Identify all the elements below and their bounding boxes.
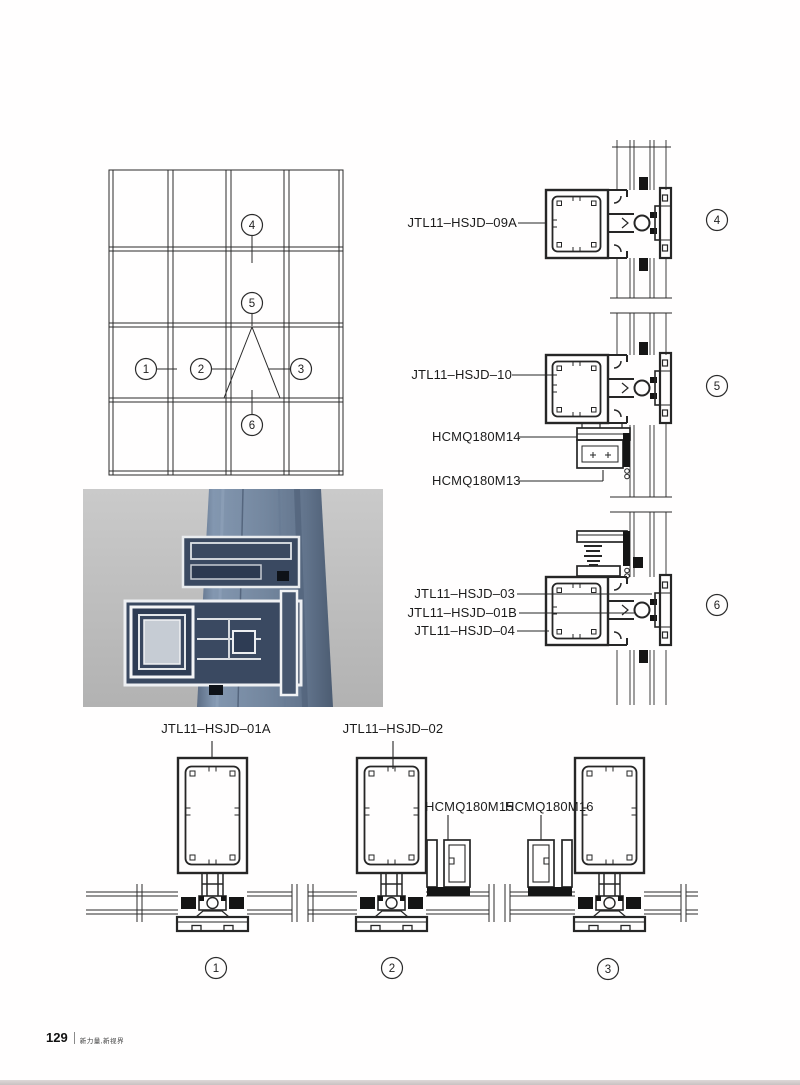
label-jtl11-hsjd-10: JTL11–HSJD–10	[402, 368, 512, 382]
callout-4: 4	[714, 215, 721, 227]
label-jtl11-hsjd-09a: JTL11–HSJD–09A	[402, 216, 517, 230]
callout-1: 1	[143, 364, 149, 376]
bottom-callouts: 1 2 3	[206, 958, 619, 980]
detail-section-2	[356, 758, 470, 931]
bottom-leader-lines	[212, 741, 541, 840]
elevation-grid	[109, 170, 343, 475]
label-hcmq180m16: HCMQ180M16	[505, 800, 585, 814]
callout-1: 1	[213, 963, 219, 975]
label-hcmq180m15: HCMQ180M15	[425, 800, 505, 814]
vent-triangle	[224, 327, 280, 398]
page-edge-strip	[0, 1080, 800, 1085]
detail-section-5	[546, 353, 671, 479]
page-footer: 129 新力量,新视界	[46, 1031, 124, 1045]
profile-3d-render-photo	[83, 489, 383, 707]
detail-section-1	[177, 758, 248, 931]
detail-section-4	[546, 188, 671, 258]
vent-frame-6	[577, 531, 630, 578]
catalog-page: 4 5 1 2 3 6	[0, 0, 800, 1085]
footer-tagline: 新力量,新视界	[80, 1035, 124, 1045]
label-jtl11-hsjd-02: JTL11–HSJD–02	[338, 722, 448, 736]
hcmq180m15-frame	[427, 840, 470, 896]
label-hcmq180m14: HCMQ180M14	[432, 430, 517, 444]
label-hcmq180m13: HCMQ180M13	[432, 474, 517, 488]
callout-6: 6	[249, 420, 255, 432]
page-number: 129	[46, 1031, 68, 1045]
callout-3: 3	[298, 364, 304, 376]
detail-section-3	[528, 758, 645, 931]
callout-2: 2	[198, 364, 204, 376]
label-jtl11-hsjd-01a: JTL11–HSJD–01A	[156, 722, 276, 736]
label-jtl11-hsjd-03: JTL11–HSJD–03	[410, 587, 515, 601]
hcmq180m16-frame	[528, 840, 572, 896]
callout-5: 5	[714, 381, 720, 393]
detail-section-6	[546, 531, 671, 645]
right-callouts: 4 5 6	[707, 210, 728, 616]
label-jtl11-hsjd-01b: JTL11–HSJD–01B	[402, 606, 517, 620]
callout-3: 3	[605, 964, 611, 976]
callout-4: 4	[249, 220, 256, 232]
footer-divider	[74, 1032, 75, 1044]
callout-6: 6	[714, 600, 720, 612]
callout-2: 2	[389, 963, 395, 975]
callout-5: 5	[249, 298, 255, 310]
label-jtl11-hsjd-04: JTL11–HSJD–04	[410, 624, 515, 638]
